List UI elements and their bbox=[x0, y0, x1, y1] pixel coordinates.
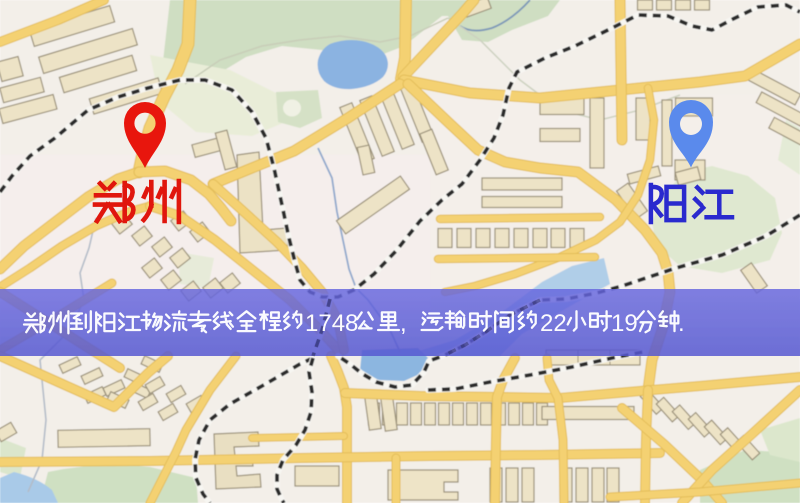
svg-text:1748: 1748 bbox=[305, 310, 358, 337]
svg-text:19: 19 bbox=[611, 310, 638, 337]
svg-text:.: . bbox=[678, 310, 685, 337]
svg-text:22: 22 bbox=[540, 310, 567, 337]
svg-text:,: , bbox=[400, 310, 407, 337]
